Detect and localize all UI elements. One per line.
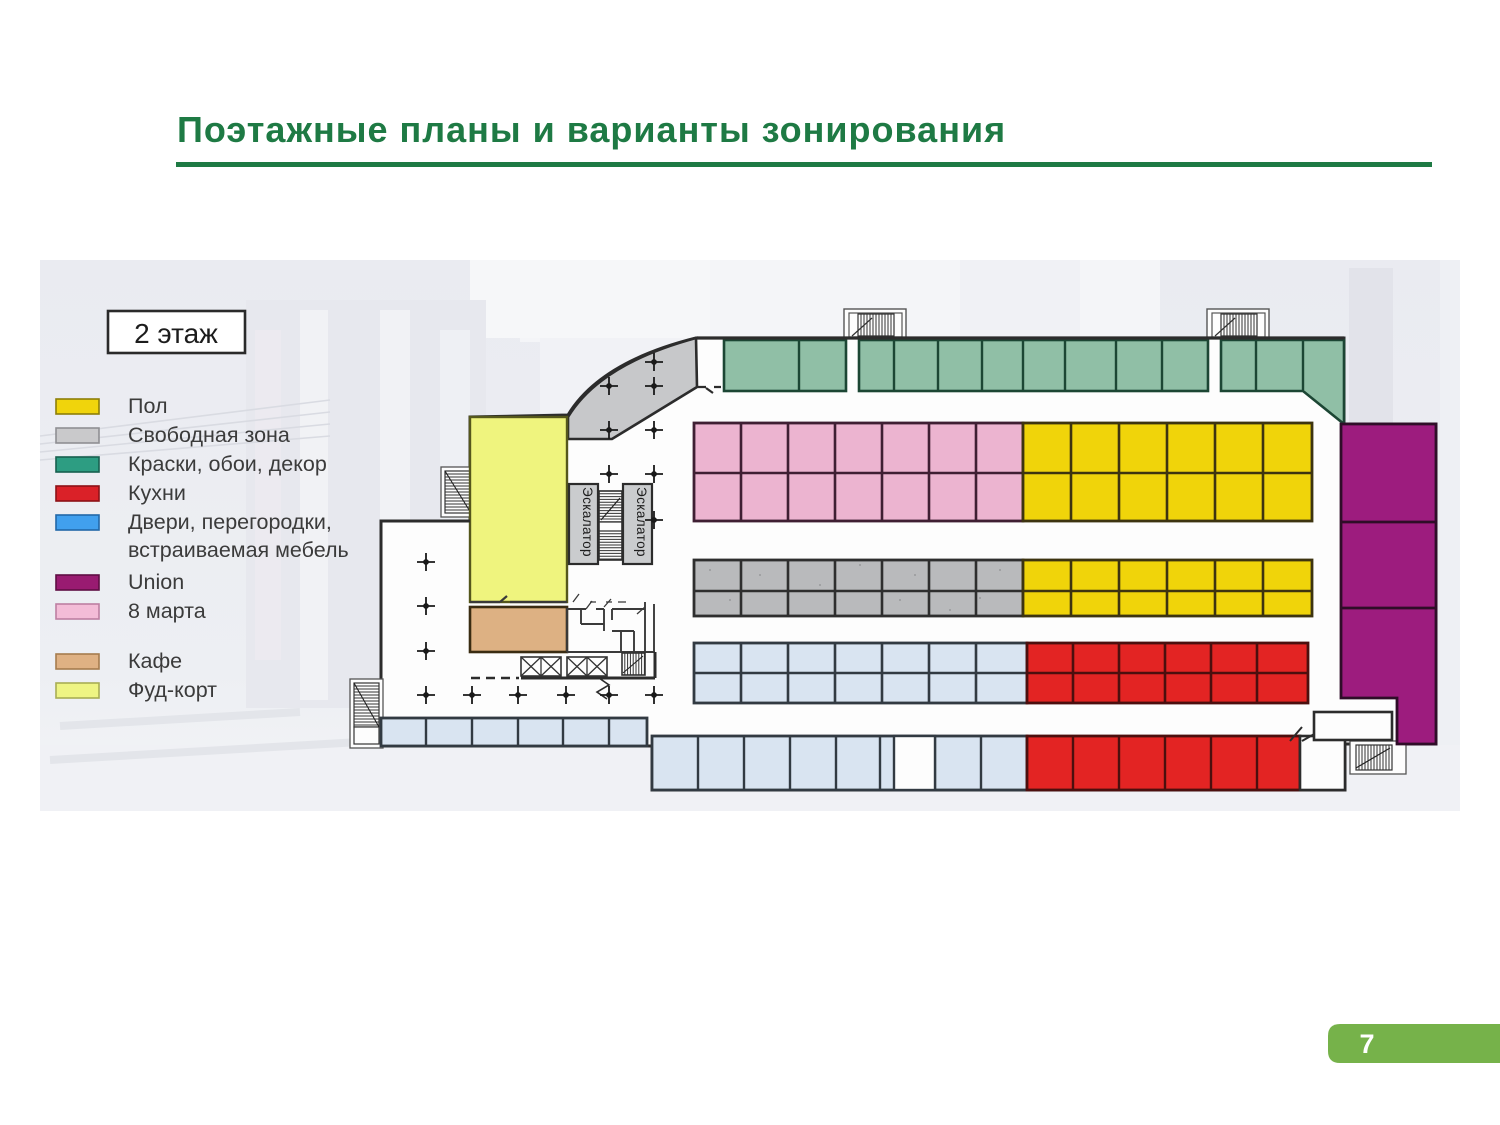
svg-text:Двери, перегородки,: Двери, перегородки, — [128, 510, 332, 534]
svg-text:7: 7 — [1359, 1029, 1374, 1059]
svg-text:Пол: Пол — [128, 394, 167, 418]
svg-text:8 марта: 8 марта — [128, 599, 206, 623]
svg-text:Эскалатор: Эскалатор — [634, 487, 649, 557]
svg-text:встраиваемая мебель: встраиваемая мебель — [128, 538, 349, 562]
svg-text:Кафе: Кафе — [128, 649, 182, 673]
svg-text:Кухни: Кухни — [128, 481, 186, 505]
svg-text:Свободная зона: Свободная зона — [128, 423, 290, 447]
svg-text:Эскалатор: Эскалатор — [580, 487, 595, 557]
svg-text:Фуд-корт: Фуд-корт — [128, 678, 217, 702]
svg-text:2 этаж: 2 этаж — [134, 318, 218, 349]
svg-text:Поэтажные планы и варианты зон: Поэтажные планы и варианты зонирования — [177, 109, 1006, 150]
svg-text:Union: Union — [128, 570, 184, 594]
svg-text:Краски, обои, декор: Краски, обои, декор — [128, 452, 327, 476]
